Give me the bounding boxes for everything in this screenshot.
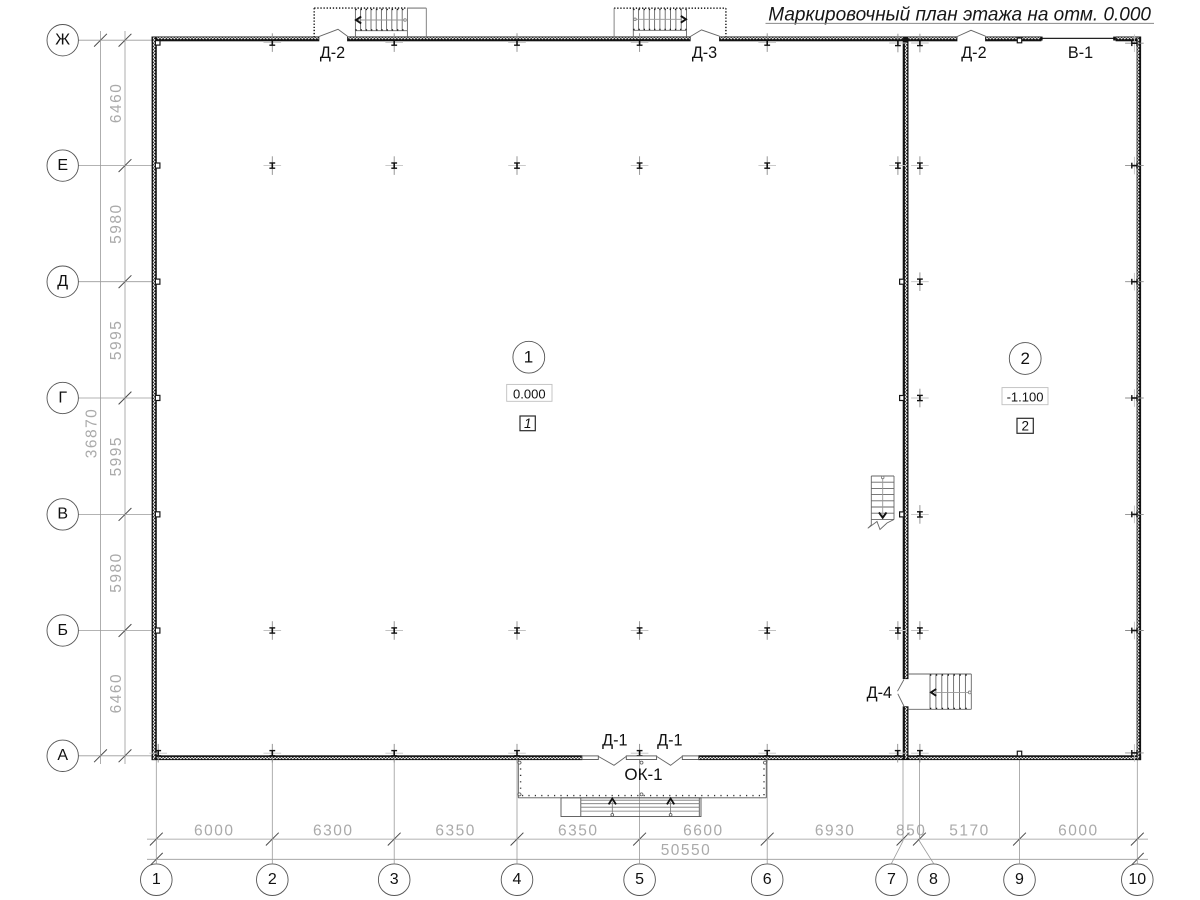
svg-text:Д-1: Д-1: [602, 731, 627, 749]
svg-text:5995: 5995: [108, 320, 125, 360]
svg-text:Е: Е: [57, 157, 68, 174]
svg-text:В-1: В-1: [1068, 44, 1093, 62]
svg-text:Б: Б: [57, 622, 68, 639]
svg-text:Д-4: Д-4: [867, 684, 892, 702]
svg-text:Г: Г: [58, 389, 67, 406]
svg-text:Д: Д: [57, 273, 68, 290]
svg-text:6350: 6350: [558, 823, 598, 840]
svg-text:Д-2: Д-2: [320, 44, 345, 62]
svg-text:2: 2: [1021, 419, 1029, 434]
svg-text:1: 1: [524, 416, 532, 431]
svg-text:2: 2: [1020, 349, 1029, 368]
svg-text:7: 7: [887, 871, 896, 888]
svg-text:0.000: 0.000: [513, 386, 546, 401]
svg-text:2: 2: [268, 871, 277, 888]
svg-text:6: 6: [763, 871, 772, 888]
svg-text:Ж: Ж: [55, 32, 70, 49]
svg-text:6460: 6460: [108, 83, 125, 123]
svg-text:6000: 6000: [1058, 823, 1098, 840]
svg-text:Д-1: Д-1: [657, 731, 682, 749]
svg-text:6930: 6930: [815, 823, 855, 840]
svg-text:5170: 5170: [949, 823, 989, 840]
svg-text:10: 10: [1128, 871, 1146, 888]
svg-text:850: 850: [896, 823, 926, 840]
svg-text:ОК-1: ОК-1: [624, 765, 662, 784]
svg-text:6000: 6000: [194, 823, 234, 840]
svg-text:6600: 6600: [683, 823, 723, 840]
svg-text:-1.100: -1.100: [1007, 389, 1044, 404]
svg-text:В: В: [57, 506, 68, 523]
svg-text:5995: 5995: [108, 436, 125, 476]
svg-text:Д-2: Д-2: [961, 44, 986, 62]
svg-text:1: 1: [524, 348, 533, 367]
svg-text:5980: 5980: [108, 203, 125, 243]
svg-text:8: 8: [929, 871, 938, 888]
svg-text:4: 4: [513, 871, 522, 888]
svg-text:Маркировочный план этажа на от: Маркировочный план этажа на отм. 0.000: [768, 4, 1151, 25]
svg-text:А: А: [57, 747, 68, 764]
svg-text:36870: 36870: [83, 408, 100, 459]
svg-text:Д-3: Д-3: [692, 44, 717, 62]
svg-text:6460: 6460: [108, 673, 125, 713]
svg-text:5: 5: [635, 871, 644, 888]
svg-text:6300: 6300: [313, 823, 353, 840]
svg-text:6350: 6350: [435, 823, 475, 840]
svg-text:50550: 50550: [661, 842, 712, 859]
svg-text:1: 1: [152, 871, 161, 888]
svg-text:5980: 5980: [108, 552, 125, 592]
svg-text:9: 9: [1015, 871, 1024, 888]
svg-text:3: 3: [390, 871, 399, 888]
